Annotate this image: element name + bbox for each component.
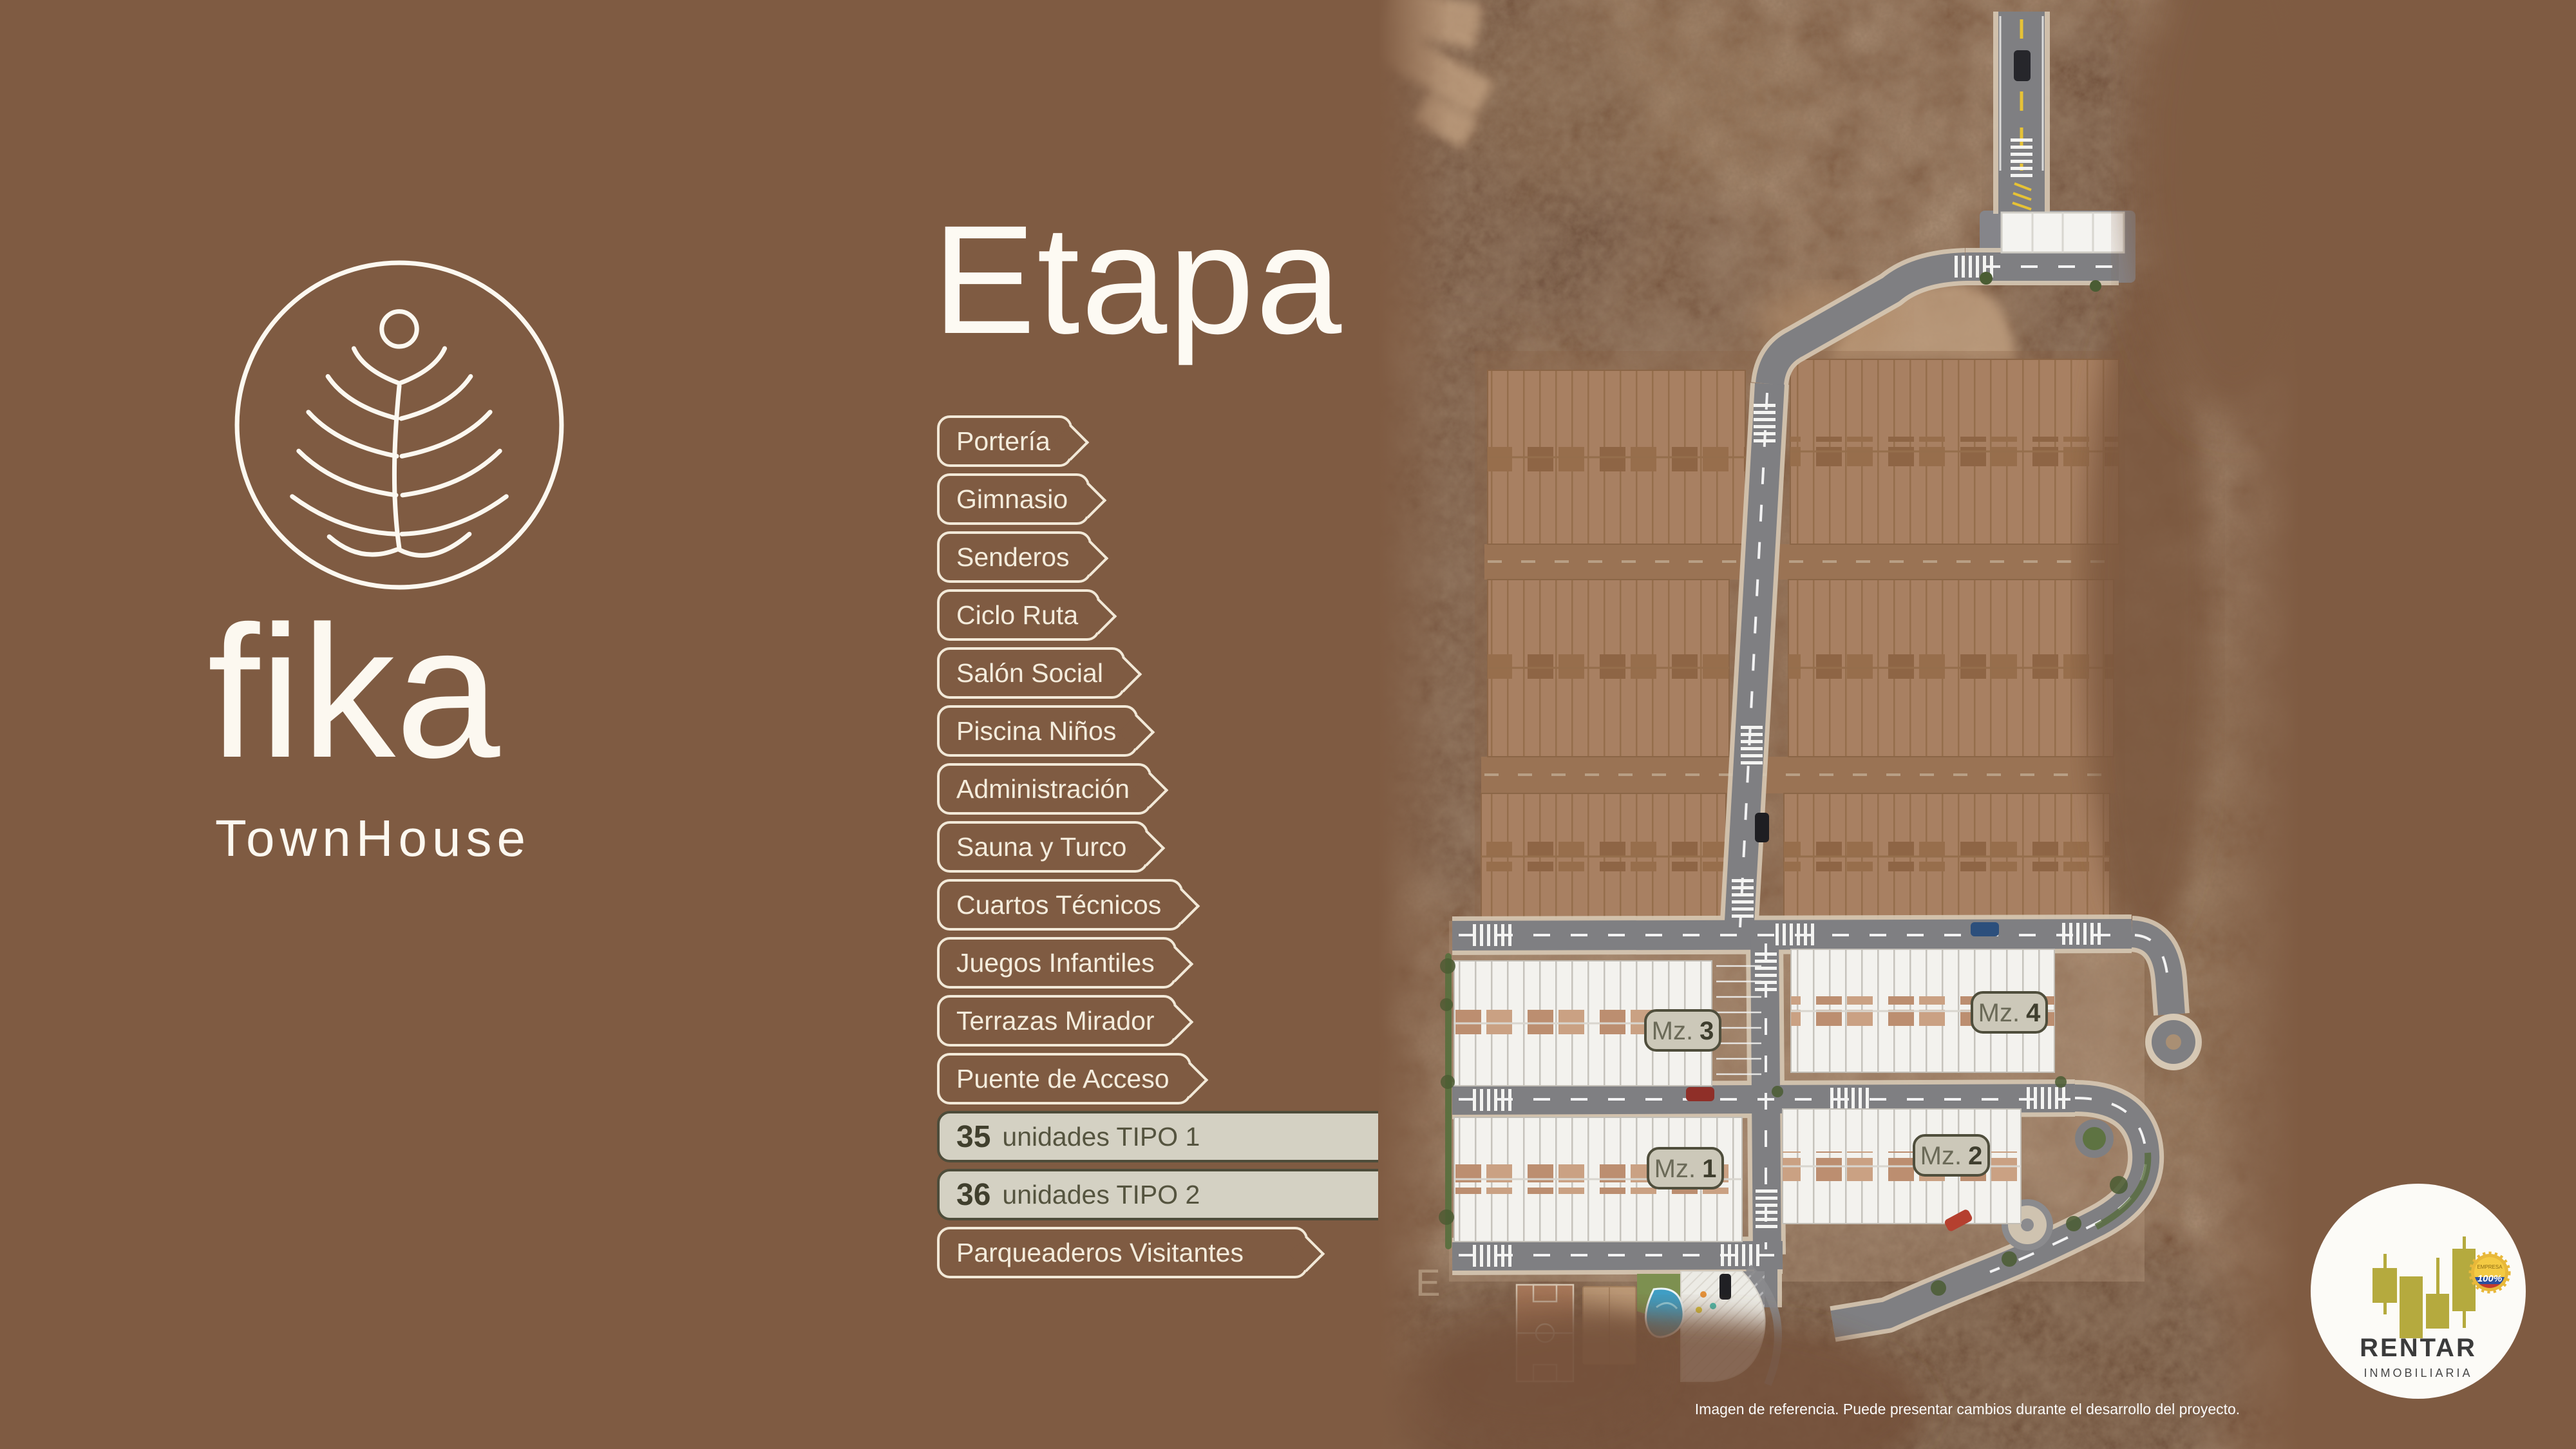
tag-juegos-infantiles: Juegos Infantiles bbox=[937, 937, 1177, 989]
badge-top-label: EMPRESA bbox=[2477, 1264, 2503, 1270]
tag-terrazas-mirador: Terrazas Mirador bbox=[937, 995, 1177, 1046]
tag-unidades-tipo-2: 36 unidades TIPO 2 bbox=[937, 1169, 1396, 1220]
tag-porteria: Portería bbox=[937, 415, 1072, 467]
tag-sauna-turco: Sauna y Turco bbox=[937, 821, 1148, 873]
badge-mz4: Mz.4 bbox=[1972, 992, 2047, 1032]
future-stage-blocks bbox=[1475, 277, 2212, 947]
right-fade bbox=[2196, 0, 2299, 1449]
tipo1-count: 35 bbox=[956, 1119, 990, 1155]
mz3-number: 3 bbox=[1700, 1017, 1714, 1045]
fika-logo-icon bbox=[231, 256, 568, 594]
tag-puente-acceso: Puente de Acceso bbox=[937, 1053, 1191, 1104]
svg-text:Mz.3: Mz.3 bbox=[1652, 1017, 1714, 1045]
rentar-name: RENTAR bbox=[2360, 1334, 2477, 1362]
tag-ciclo-ruta: Ciclo Ruta bbox=[937, 589, 1100, 641]
mz4-number: 4 bbox=[2026, 999, 2041, 1027]
watermark-e: E bbox=[1416, 1262, 1441, 1304]
mz1-number: 1 bbox=[1702, 1155, 1716, 1183]
tag-senderos: Senderos bbox=[937, 531, 1092, 583]
tag-administracion: Administración bbox=[937, 763, 1151, 815]
tag-cuartos-tecnicos: Cuartos Técnicos bbox=[937, 879, 1183, 931]
tag-parqueaderos-visitantes: Parqueaderos Visitantes bbox=[937, 1227, 1308, 1278]
tag-piscina-ninos: Piscina Niños bbox=[937, 705, 1138, 757]
rentar-logo: EMPRESA 100% RENTAR INMOBILIARIA bbox=[2307, 1180, 2530, 1403]
badge-mz1: Mz.1 bbox=[1648, 1148, 1723, 1188]
map-disclaimer: Imagen de referencia. Puede presentar ca… bbox=[1695, 1401, 2240, 1417]
tipo1-label: unidades TIPO 1 bbox=[1002, 1122, 1200, 1152]
badge-mz2: Mz.2 bbox=[1914, 1135, 1989, 1175]
mz1-prefix: Mz. bbox=[1654, 1155, 1696, 1183]
tag-gimnasio: Gimnasio bbox=[937, 473, 1090, 525]
amenity-tag-list: Portería Gimnasio Senderos Ciclo Ruta Sa… bbox=[937, 415, 1396, 1285]
svg-text:Mz.1: Mz.1 bbox=[1654, 1155, 1717, 1183]
svg-text:Mz.4: Mz.4 bbox=[1978, 999, 2041, 1027]
badge-mz3: Mz.3 bbox=[1645, 1010, 1720, 1050]
mz2-number: 2 bbox=[1968, 1142, 1982, 1170]
brand-name: fika bbox=[207, 598, 594, 786]
svg-text:Mz.2: Mz.2 bbox=[1920, 1142, 1983, 1170]
site-plan-map: Mz.3 Mz.4 Mz.1 Mz.2 E Imagen de referenc… bbox=[1378, 0, 2299, 1449]
poster: fika TownHouse Etapa 1 Portería Gimnasio… bbox=[0, 0, 2576, 1449]
tipo2-count: 36 bbox=[956, 1177, 990, 1213]
tag-unidades-tipo-1: 35 unidades TIPO 1 bbox=[937, 1111, 1396, 1162]
mz4-prefix: Mz. bbox=[1978, 999, 2020, 1027]
tipo2-label: unidades TIPO 2 bbox=[1002, 1180, 1200, 1210]
left-fade bbox=[1378, 0, 1449, 1449]
mz3-prefix: Mz. bbox=[1652, 1017, 1693, 1045]
badge-value-label: 100% bbox=[2477, 1273, 2502, 1284]
mz2-prefix: Mz. bbox=[1920, 1142, 1962, 1170]
rentar-subtitle: INMOBILIARIA bbox=[2363, 1367, 2472, 1379]
tag-salon-social: Salón Social bbox=[937, 647, 1125, 699]
brand-subtitle: TownHouse bbox=[215, 809, 531, 868]
